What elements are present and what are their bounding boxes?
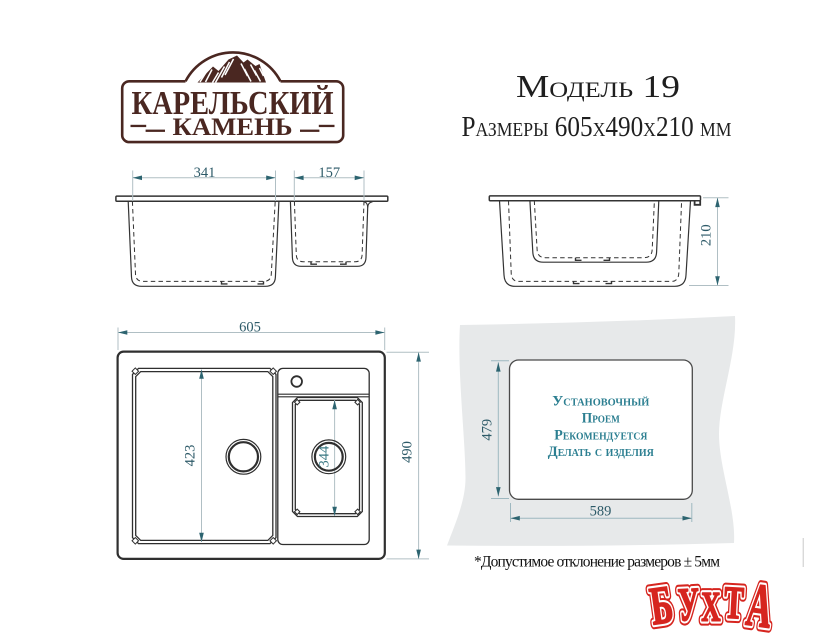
svg-text:Модель 19: Модель 19	[516, 69, 680, 104]
svg-text:Б: Б	[646, 574, 676, 637]
svg-text:479: 479	[480, 419, 496, 441]
svg-text:А: А	[743, 569, 777, 640]
svg-text:344: 344	[317, 445, 333, 468]
svg-text:589: 589	[590, 504, 612, 520]
svg-text:Х: Х	[701, 584, 721, 630]
svg-text:Делать с изделия: Делать с изделия	[548, 444, 655, 460]
svg-text:У: У	[677, 579, 701, 632]
svg-text:Проем: Проем	[582, 411, 621, 427]
svg-text:210: 210	[699, 224, 715, 246]
svg-text:Т: Т	[723, 578, 745, 629]
svg-text:Рекомендуется: Рекомендуется	[554, 428, 648, 444]
svg-text:КАМЕНЬ: КАМЕНЬ	[173, 112, 293, 141]
svg-text:341: 341	[194, 165, 216, 181]
svg-text:423: 423	[183, 445, 199, 467]
svg-text:490: 490	[400, 441, 416, 463]
svg-text:Размеры 605х490х210 мм: Размеры 605х490х210 мм	[462, 112, 732, 143]
svg-text:605: 605	[239, 320, 261, 336]
svg-text:Установочный: Установочный	[552, 394, 649, 410]
svg-text:*Допустимое отклонение размеро: *Допустимое отклонение размеров ± 5мм	[474, 554, 720, 571]
svg-text:157: 157	[318, 165, 340, 181]
